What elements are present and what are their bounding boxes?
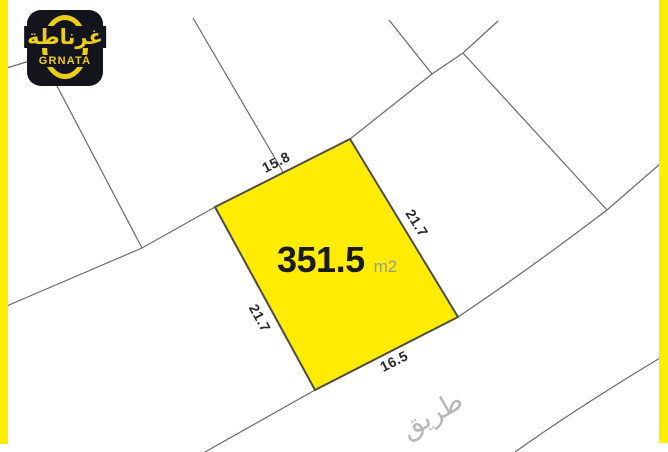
road-edge-line — [515, 358, 660, 452]
road-edge-line — [205, 390, 315, 452]
logo-arabic-name: غرناطة — [24, 26, 106, 48]
land-plot-map: 15.8 21.7 21.7 16.5 351.5 m2 طريق غرناطة… — [0, 0, 668, 452]
grnata-logo: غرناطة GRNATA — [27, 10, 103, 86]
boundary-line — [389, 20, 432, 74]
road-edge-line — [458, 210, 607, 317]
boundary-line — [2, 207, 215, 308]
area-value: 351.5 — [277, 239, 365, 281]
boundary-line — [193, 18, 283, 172]
boundary-line — [350, 21, 498, 139]
boundary-line — [463, 53, 607, 210]
boundary-line — [57, 86, 142, 248]
logo-latin-name: GRNATA — [37, 55, 94, 67]
frame-strip-left — [0, 0, 8, 444]
area-unit: m2 — [374, 257, 398, 277]
boundary-line — [607, 164, 660, 210]
frame-strip-right — [659, 0, 668, 443]
plot-area-label: 351.5 m2 — [277, 239, 397, 281]
